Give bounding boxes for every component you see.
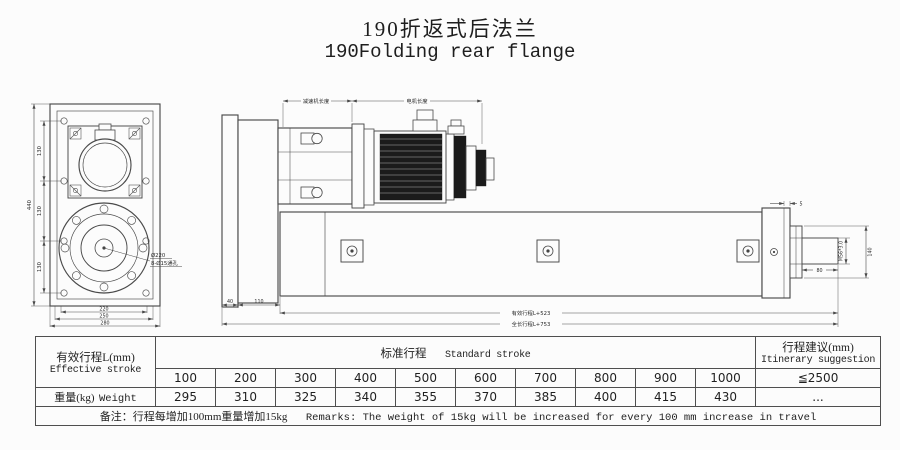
- spec-table: 有效行程L(mm) Effective stroke 标准行程 Standard…: [35, 336, 881, 426]
- dim-220: 220: [99, 307, 108, 313]
- stroke-header-zh: 有效行程L(mm): [36, 349, 155, 365]
- standard-stroke-zh: 标准行程: [381, 348, 427, 360]
- weight-suggestion-cell: ...: [756, 388, 881, 407]
- motor-connector-small: [448, 120, 464, 134]
- remark-en: Remarks: The weight of 15kg will be incr…: [306, 412, 816, 424]
- gearbox: [278, 128, 352, 204]
- rod-end-assembly: [762, 208, 838, 298]
- weight-label-en: Weight: [99, 393, 137, 405]
- stroke-cell: 700: [516, 369, 576, 388]
- page-title-english: 190Folding rear flange: [0, 41, 900, 63]
- dim-thread: M56*3.0: [839, 241, 845, 261]
- dim-110: 110: [254, 299, 263, 305]
- stroke-cell: 100: [156, 369, 216, 388]
- technical-drawing: Ø220 8-Ø15通孔 130 130 130 440 220 250 280: [0, 84, 900, 332]
- weight-label-cell: 重量(kg) Weight: [36, 388, 156, 407]
- suggestion-header-en: Itinerary suggestion: [756, 355, 880, 366]
- label-through-holes: 8-Ø15通孔: [151, 259, 178, 267]
- stroke-header-cell: 有效行程L(mm) Effective stroke: [36, 337, 156, 388]
- suggestion-header-cell: 行程建议(mm) Itinerary suggestion: [756, 337, 881, 369]
- weight-cell: 370: [456, 388, 516, 407]
- page-title-chinese: 190折返式后法兰: [0, 13, 900, 43]
- sensor-block: [537, 240, 559, 262]
- side-view: [222, 110, 838, 307]
- dim-motor-length: 电机长度: [406, 97, 428, 105]
- stroke-header-en: Effective stroke: [36, 365, 155, 376]
- stroke-cell: 300: [276, 369, 336, 388]
- weight-cell: 415: [636, 388, 696, 407]
- dim-130: 130: [37, 145, 43, 156]
- dim-130: 130: [37, 205, 43, 216]
- dim-140: 140: [868, 247, 874, 256]
- spec-sheet-page: { "title": { "zh": "190折返式后法兰", "en": "1…: [0, 0, 900, 450]
- weight-cell: 385: [516, 388, 576, 407]
- stroke-cell: 900: [636, 369, 696, 388]
- front-view: Ø220 8-Ø15通孔: [50, 104, 182, 306]
- motor-mount-plate: [352, 124, 364, 208]
- standard-stroke-en: Standard stroke: [445, 350, 531, 361]
- weight-label-zh: 重量(kg): [54, 392, 94, 404]
- weight-cell: 355: [396, 388, 456, 407]
- weight-cell: 430: [696, 388, 756, 407]
- dim-40: 40: [227, 299, 233, 305]
- dim-reducer-length: 减速机长度: [303, 97, 330, 105]
- stroke-cell: 200: [216, 369, 276, 388]
- remark-cell: 备注：行程每增加100mm重量增加15kg Remarks: The weigh…: [36, 407, 881, 426]
- standard-stroke-header-cell: 标准行程 Standard stroke: [156, 337, 756, 369]
- stroke-cell: 600: [456, 369, 516, 388]
- piston-rod: [802, 238, 838, 264]
- sensor-block: [341, 240, 363, 262]
- servo-motor: [374, 110, 494, 203]
- weight-cell: 310: [216, 388, 276, 407]
- stroke-cell: 400: [336, 369, 396, 388]
- label-bolt-circle: Ø220: [151, 252, 166, 259]
- dim-80: 80: [816, 268, 822, 274]
- suggestion-max-cell: ≦2500: [756, 369, 881, 388]
- weight-cell: 325: [276, 388, 336, 407]
- motor-adapter-plate: [364, 129, 374, 205]
- dim-440: 440: [27, 199, 33, 210]
- dim-overall-length: 全长行程L+753: [512, 320, 551, 328]
- stroke-cell: 1000: [696, 369, 756, 388]
- sensor-block: [737, 240, 759, 262]
- dim-250: 250: [99, 314, 108, 320]
- suggestion-header-zh: 行程建议(mm): [756, 339, 880, 355]
- dim-5: 5: [799, 202, 802, 208]
- motor-connector: [413, 110, 437, 131]
- motor-encoder: [466, 146, 476, 190]
- dim-280: 280: [100, 321, 109, 327]
- remark-zh: 备注：行程每增加100mm重量增加15kg: [100, 411, 288, 423]
- weight-cell: 400: [576, 388, 636, 407]
- weight-cell: 340: [336, 388, 396, 407]
- dim-130: 130: [37, 261, 43, 272]
- stroke-cell: 800: [576, 369, 636, 388]
- dim-effective-stroke: 有效行程L+523: [512, 309, 551, 317]
- rear-flange-side: [222, 115, 278, 307]
- weight-cell: 295: [156, 388, 216, 407]
- stroke-cell: 500: [396, 369, 456, 388]
